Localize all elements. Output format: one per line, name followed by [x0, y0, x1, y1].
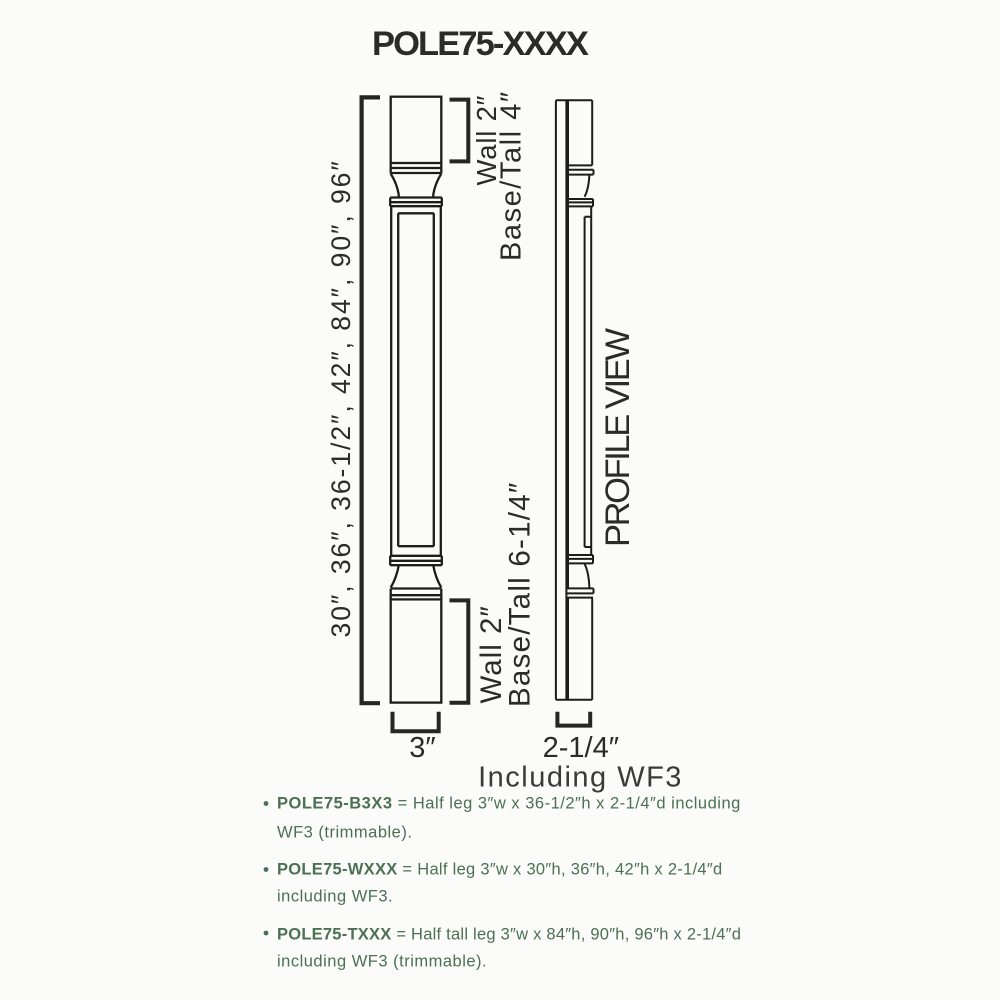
svg-text:POLE75-WXXX = Half leg 3″w x 3: POLE75-WXXX = Half leg 3″w x 30″h, 36″h,… [277, 861, 723, 879]
svg-text:including WF3 (trimmable).: including WF3 (trimmable). [277, 953, 487, 971]
svg-text:PROFILE VIEW: PROFILE VIEW [599, 328, 637, 547]
svg-text:30″, 36″, 36-1/2″, 42″, 84″, 9: 30″, 36″, 36-1/2″, 42″, 84″, 90″, 96″ [326, 159, 356, 637]
svg-text:including WF3.: including WF3. [277, 888, 393, 906]
svg-text:Base/Tall 6-1/4″: Base/Tall 6-1/4″ [504, 481, 537, 707]
svg-text:POLE75-B3X3 = Half leg 3″w x 3: POLE75-B3X3 = Half leg 3″w x 36-1/2″h x … [277, 795, 741, 813]
svg-text:POLE75-TXXX = Half tall leg 3″: POLE75-TXXX = Half tall leg 3″w x 84″h, … [277, 926, 741, 944]
svg-text:POLE75-XXXX: POLE75-XXXX [372, 25, 589, 63]
svg-text:Including WF3: Including WF3 [478, 762, 683, 794]
svg-text:Base/Tall 4″: Base/Tall 4″ [496, 90, 528, 261]
svg-text:3″: 3″ [409, 732, 435, 764]
svg-text:WF3 (trimmable).: WF3 (trimmable). [277, 824, 412, 842]
svg-text:2-1/4″: 2-1/4″ [543, 732, 619, 764]
